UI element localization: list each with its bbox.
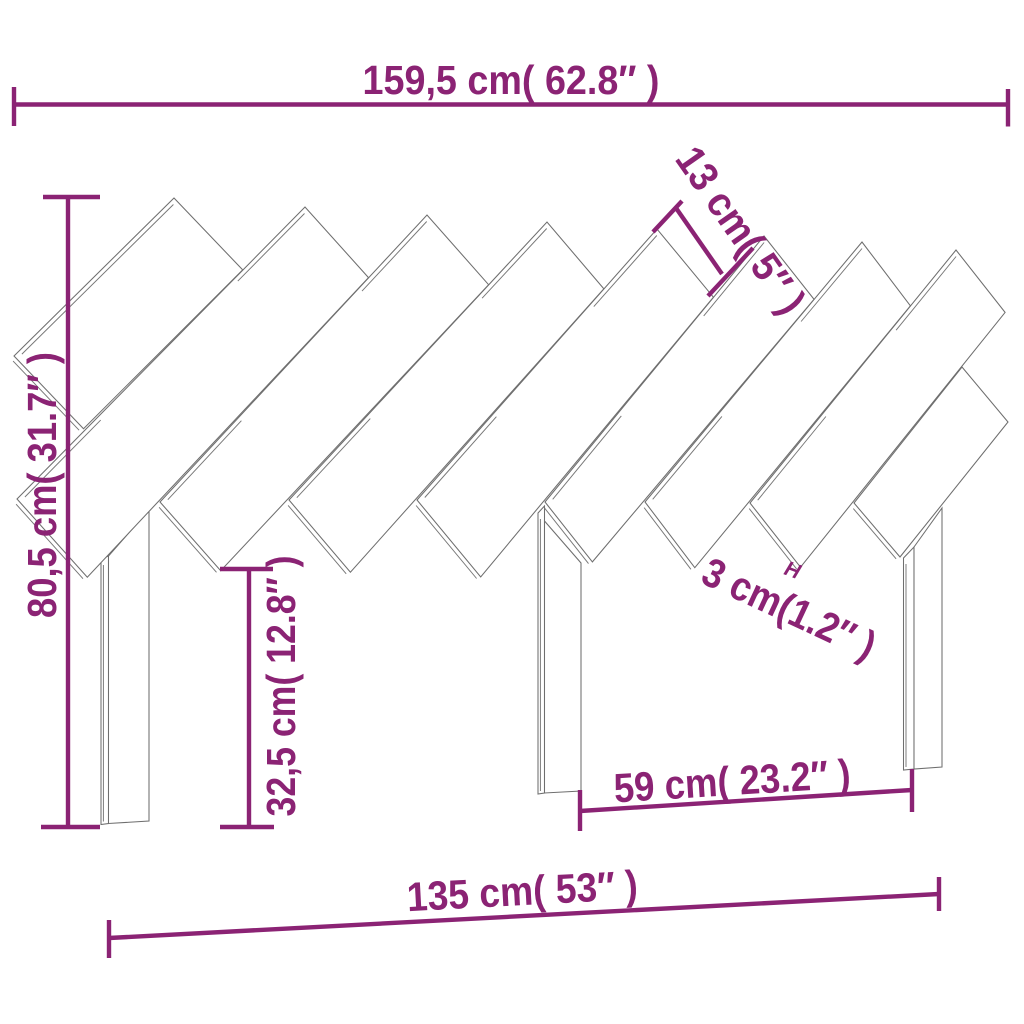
svg-text:32,5 cm( 12.8″ ): 32,5 cm( 12.8″ ) xyxy=(258,556,304,817)
svg-text:159,5 cm( 62.8″ ): 159,5 cm( 62.8″ ) xyxy=(363,57,660,103)
svg-text:80,5 cm( 31.7″ ): 80,5 cm( 31.7″ ) xyxy=(19,352,65,618)
